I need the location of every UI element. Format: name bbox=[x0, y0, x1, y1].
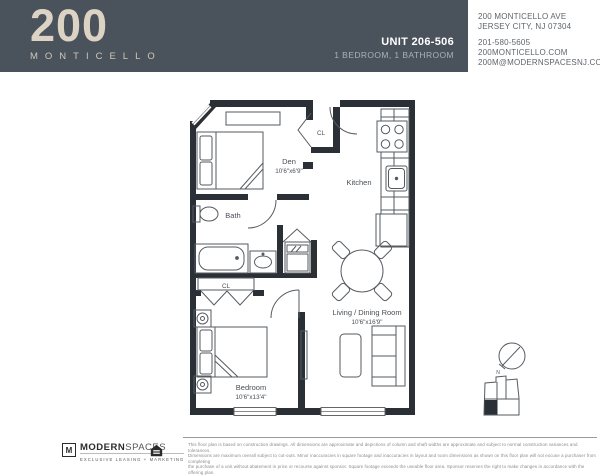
modernspaces-logo: M MODERNSPACES EXCLUSIVE LEASING + MARKE… bbox=[62, 443, 184, 464]
key-plan-unit-highlight bbox=[485, 400, 498, 415]
stove bbox=[377, 121, 407, 152]
footer-divider bbox=[183, 437, 597, 438]
bedroom-closet-bifold bbox=[201, 291, 253, 305]
den-dresser bbox=[226, 112, 280, 125]
compass-north-label: N bbox=[496, 370, 500, 376]
living-dimensions: 10'6"x16'9" bbox=[351, 319, 382, 326]
washer-dryer bbox=[283, 229, 311, 273]
bath-sink bbox=[250, 251, 276, 273]
living-label: Living / Dining Room bbox=[332, 308, 401, 317]
den-dimensions: 10'6"x6'9" bbox=[275, 168, 303, 175]
fridge bbox=[376, 214, 407, 246]
bedroom-door-arc bbox=[271, 290, 299, 318]
brand-name: MODERNSPACES bbox=[80, 443, 184, 452]
bedroom-dimensions: 10'6"x13'4" bbox=[235, 394, 266, 401]
bedroom-label: Bedroom bbox=[236, 383, 266, 392]
compass-icon: N bbox=[496, 343, 525, 376]
disclaimer-line-1: This floor plan is based on construction… bbox=[188, 442, 596, 453]
disclaimer-line-2: Dimensions are maximum overall subject t… bbox=[188, 453, 596, 464]
bath-label: Bath bbox=[225, 211, 240, 220]
disclaimer-text: This floor plan is based on construction… bbox=[188, 442, 596, 476]
floor-plan: Den 10'6"x6'9" Kitchen Bath CL CL Living… bbox=[0, 0, 600, 464]
windows bbox=[193, 106, 385, 416]
toilet bbox=[193, 206, 218, 222]
entry-closet-label: CL bbox=[317, 130, 326, 137]
floorplan-flyer: 200 MONTICELLO UNIT 206-506 1 BEDROOM, 1… bbox=[0, 0, 600, 464]
kitchen-label: Kitchen bbox=[346, 178, 371, 187]
nightstand-lamp-top bbox=[194, 310, 211, 327]
m-monogram: M bbox=[62, 443, 76, 457]
den-bed bbox=[197, 132, 263, 189]
bedroom-bed bbox=[197, 327, 267, 377]
nightstand-lamp-bottom bbox=[194, 376, 211, 393]
kitchen-sink bbox=[386, 166, 407, 191]
bathtub bbox=[195, 244, 248, 273]
den-label: Den bbox=[282, 157, 296, 166]
key-plan bbox=[484, 376, 519, 415]
equal-housing-icon bbox=[150, 444, 163, 462]
coffee-table bbox=[340, 334, 361, 377]
brand-tagline: EXCLUSIVE LEASING + MARKETING bbox=[80, 453, 184, 464]
dining-table bbox=[331, 240, 393, 302]
sofa bbox=[372, 326, 405, 386]
disclaimer-line-3: the purchase of a unit without abatement… bbox=[188, 464, 596, 475]
bedroom-closet-label: CL bbox=[222, 283, 231, 290]
bath-door-arc bbox=[248, 200, 276, 228]
